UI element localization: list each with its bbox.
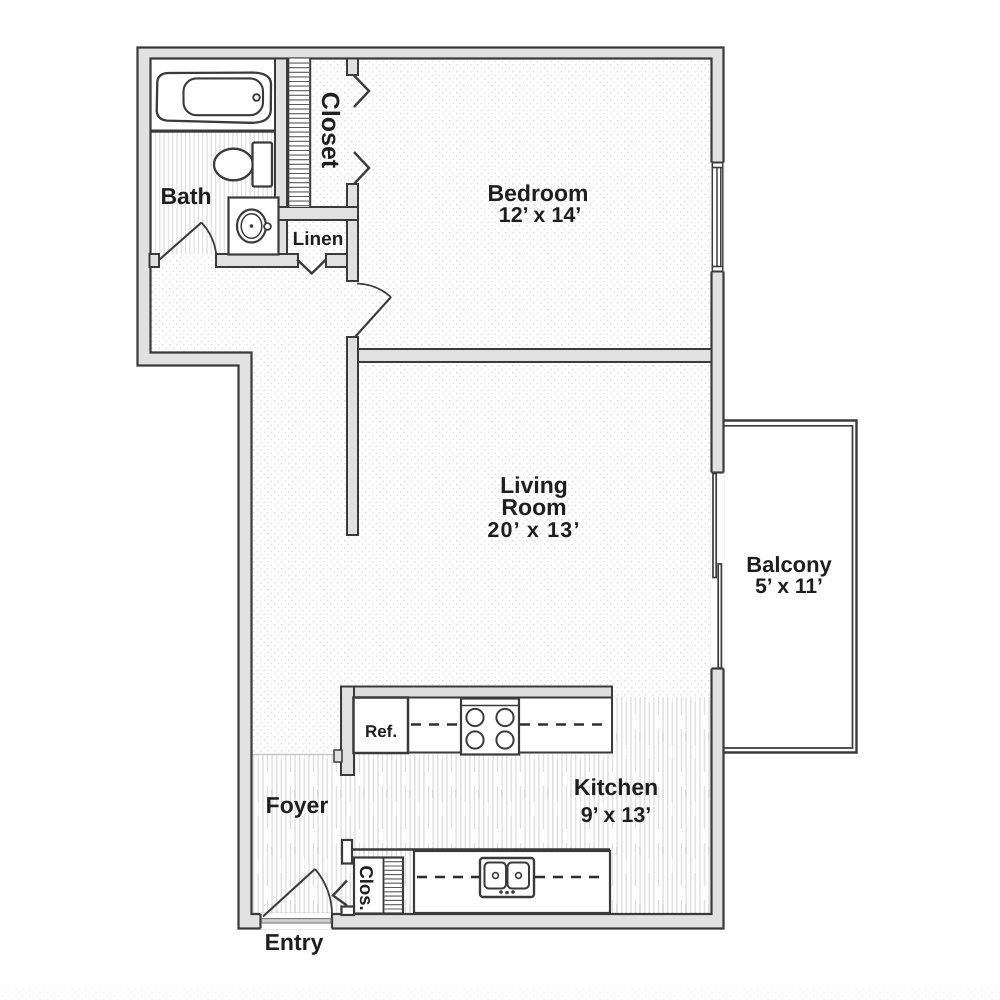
svg-text:Kitchen: Kitchen [574, 774, 658, 800]
svg-text:Clos.: Clos. [356, 865, 377, 910]
svg-text:Closet: Closet [316, 92, 344, 169]
svg-text:5’ x 11’: 5’ x 11’ [755, 575, 823, 598]
svg-text:Balcony: Balcony [746, 552, 832, 577]
svg-text:Linen: Linen [293, 229, 344, 250]
svg-text:Room: Room [501, 494, 566, 520]
svg-text:9’ x 13’: 9’ x 13’ [581, 803, 652, 827]
svg-text:Foyer: Foyer [266, 792, 329, 818]
svg-text:20’ x 13’: 20’ x 13’ [487, 518, 580, 542]
svg-text:Bath: Bath [160, 183, 211, 209]
svg-text:12’ x 14’: 12’ x 14’ [499, 203, 582, 227]
svg-text:Ref.: Ref. [365, 722, 397, 741]
svg-text:Entry: Entry [265, 929, 324, 955]
